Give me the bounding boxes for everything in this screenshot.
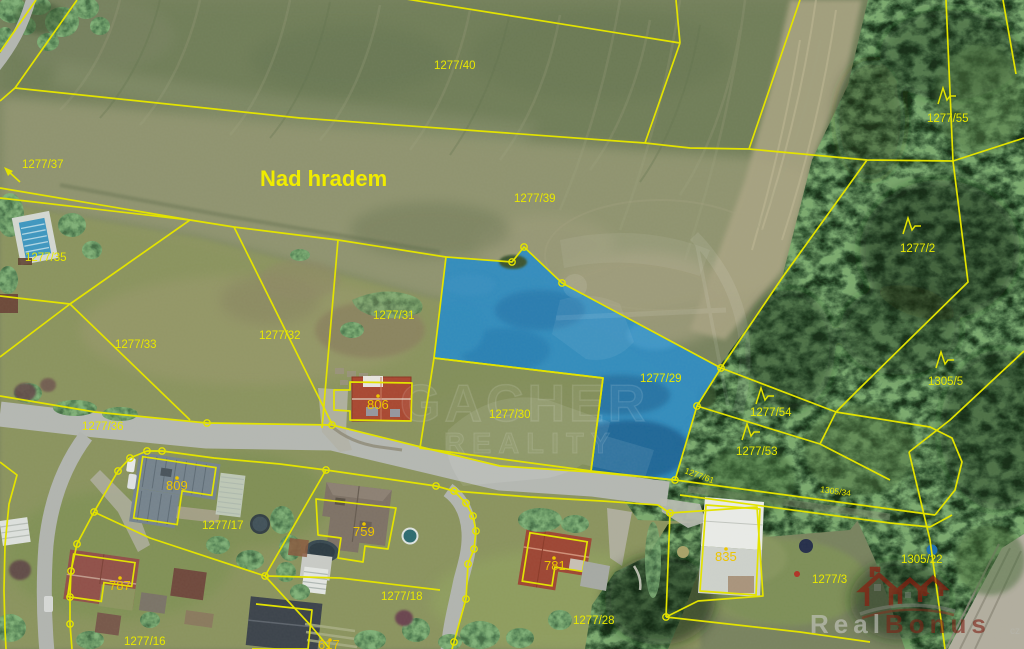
svg-text:1277/18: 1277/18 [381,591,423,603]
svg-text:759: 759 [353,524,375,539]
svg-text:1277/53: 1277/53 [736,446,778,458]
svg-text:806: 806 [367,397,389,412]
svg-text:1277/35: 1277/35 [25,252,67,264]
svg-text:RealBonus: RealBonus [810,609,991,639]
svg-text:1277/30: 1277/30 [489,409,531,421]
svg-text:1277/39: 1277/39 [514,193,556,205]
svg-text:1277/2: 1277/2 [900,243,935,255]
svg-text:1305/5: 1305/5 [928,376,963,388]
svg-text:Nad hradem: Nad hradem [260,166,387,191]
svg-text:1277/33: 1277/33 [115,339,157,351]
svg-text:835: 835 [715,549,737,564]
svg-text:1277/55: 1277/55 [927,113,969,125]
svg-text:787: 787 [109,578,131,593]
svg-text:cz: cz [1010,626,1020,637]
svg-text:809: 809 [166,478,188,493]
svg-text:GACHER: GACHER [400,375,649,433]
svg-text:1277/40: 1277/40 [434,60,476,72]
svg-text:1277/54: 1277/54 [750,407,792,419]
svg-text:1277/3: 1277/3 [812,574,847,586]
svg-text:1277/36: 1277/36 [82,421,124,433]
svg-text:1277/28: 1277/28 [573,615,615,627]
svg-text:1305/22: 1305/22 [901,554,943,566]
svg-text:1277/32: 1277/32 [259,330,301,342]
svg-text:1277/16: 1277/16 [124,636,166,648]
svg-text:1277/17: 1277/17 [202,520,244,532]
svg-text:781: 781 [544,558,566,573]
svg-text:1277/37: 1277/37 [22,159,64,171]
svg-text:1277/31: 1277/31 [373,310,415,322]
svg-text:1277/29: 1277/29 [640,373,682,385]
